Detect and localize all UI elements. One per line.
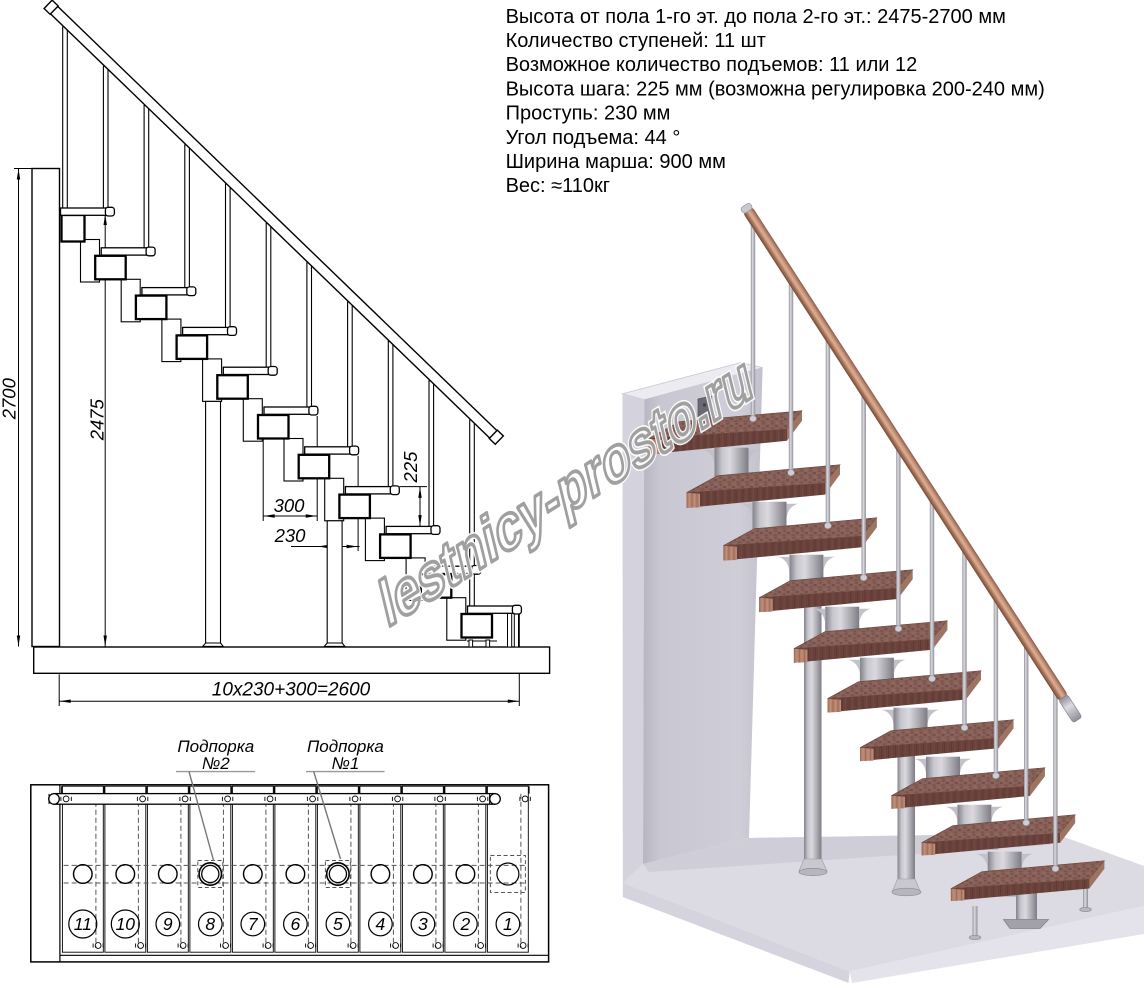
svg-text:300: 300 — [274, 495, 306, 516]
svg-text:11: 11 — [74, 914, 92, 934]
svg-text:4: 4 — [376, 914, 386, 934]
svg-text:№2: №2 — [202, 754, 230, 773]
svg-text:8: 8 — [205, 914, 215, 934]
svg-text:Высота шага: 225 мм (возможна: Высота шага: 225 мм (возможна регулировк… — [506, 78, 1045, 100]
svg-text:Возможное количество подъемов:: Возможное количество подъемов: 11 или 12 — [506, 54, 918, 76]
svg-text:2475: 2475 — [87, 398, 108, 441]
svg-text:2: 2 — [460, 914, 471, 934]
svg-text:6: 6 — [291, 914, 301, 934]
svg-text:Ширина марша: 900 мм: Ширина марша: 900 мм — [506, 151, 726, 173]
svg-text:Количество ступеней: 11 шт: Количество ступеней: 11 шт — [506, 30, 766, 52]
svg-text:№1: №1 — [331, 754, 359, 773]
svg-text:225: 225 — [400, 451, 421, 484]
svg-text:10: 10 — [116, 914, 136, 934]
svg-text:1: 1 — [503, 914, 513, 934]
svg-text:5: 5 — [333, 914, 343, 934]
svg-text:9: 9 — [163, 914, 173, 934]
svg-text:Угол подъема: 44 °: Угол подъема: 44 ° — [506, 127, 681, 149]
svg-text:2700: 2700 — [0, 377, 20, 420]
svg-text:7: 7 — [248, 914, 259, 934]
svg-text:Вес: ≈110кг: Вес: ≈110кг — [506, 175, 610, 197]
svg-text:3: 3 — [418, 914, 428, 934]
svg-text:Проступь: 230 мм: Проступь: 230 мм — [506, 103, 671, 125]
svg-text:230: 230 — [274, 525, 307, 546]
svg-text:Высота от пола 1-го эт. до пол: Высота от пола 1-го эт. до пола 2-го эт.… — [506, 6, 1006, 28]
svg-text:10x230+300=2600: 10x230+300=2600 — [212, 680, 371, 701]
